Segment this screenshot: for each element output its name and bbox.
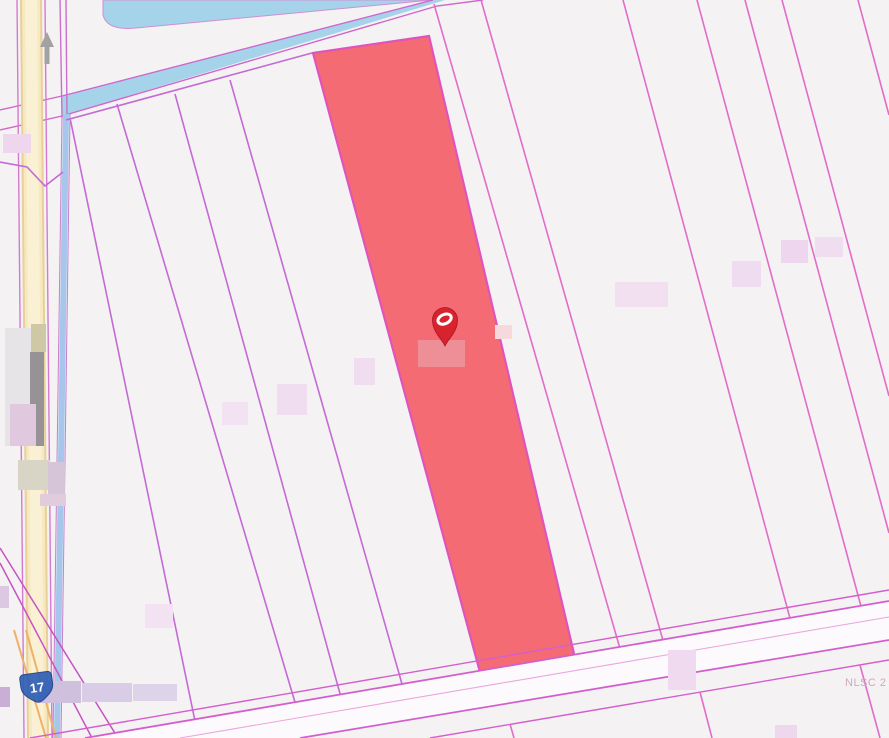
blurred-label: [277, 384, 307, 415]
route-shield-label: 17: [29, 679, 45, 696]
blurred-label: [48, 462, 65, 496]
blurred-label: [3, 134, 31, 153]
blurred-label: [0, 687, 10, 707]
blurred-label: [145, 604, 173, 628]
map-watermark: NLSC 2: [845, 677, 887, 689]
blurred-label: [18, 460, 50, 490]
blurred-label: [775, 725, 797, 738]
blurred-road-label: [133, 684, 177, 701]
blurred-label: [668, 650, 696, 690]
map-canvas[interactable]: 17 NLSC 2: [0, 0, 889, 738]
blurred-label: [40, 494, 66, 506]
road-boundary: [66, 0, 67, 118]
blurred-label: [0, 586, 9, 608]
blurred-label: [495, 325, 512, 339]
blurred-label-on-parcel: [418, 340, 465, 367]
map-viewport[interactable]: 17 NLSC 2: [0, 0, 889, 738]
blurred-label: [222, 402, 248, 425]
blurred-label: [615, 282, 668, 307]
blurred-label: [10, 404, 36, 446]
blurred-label: [732, 261, 761, 287]
blurred-label: [354, 358, 375, 385]
blurred-label: [781, 240, 808, 263]
blurred-road-label: [82, 683, 132, 702]
blurred-label: [31, 324, 46, 352]
blurred-label: [815, 237, 843, 257]
